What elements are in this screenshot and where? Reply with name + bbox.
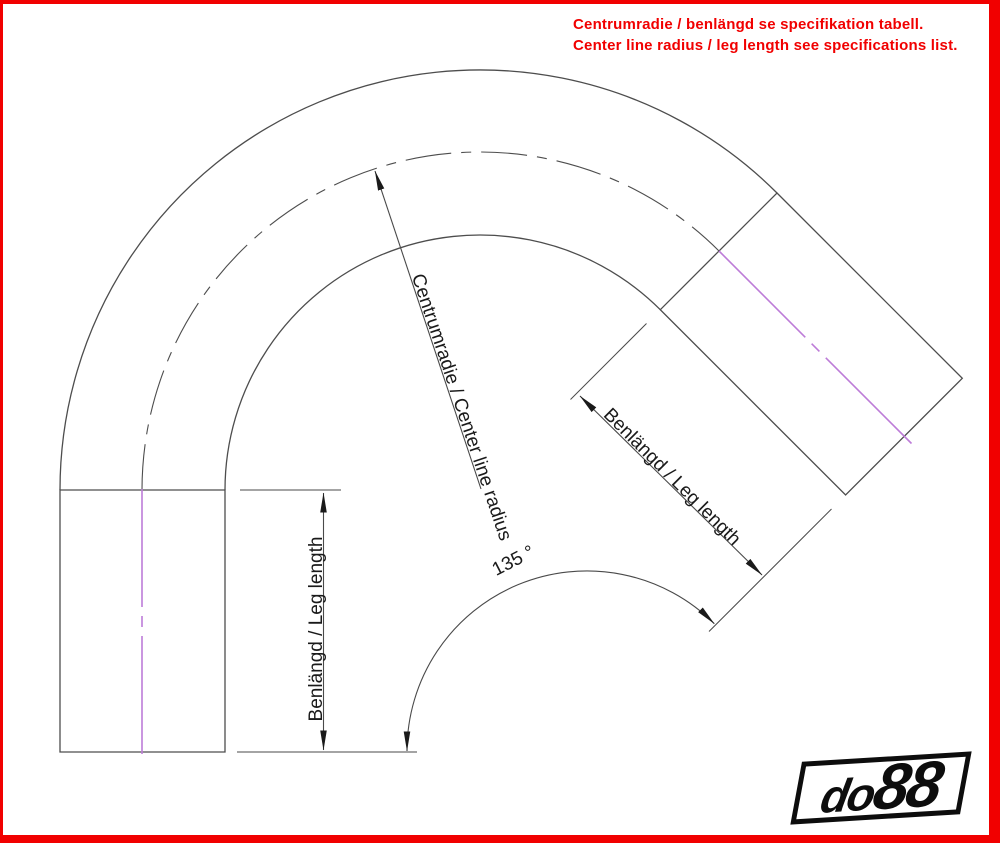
technical-drawing: Centrumradie / Center line radius Benlän… [0,0,1000,843]
specification-note-line2: Center line radius / leg length see spec… [573,35,958,56]
right-leg-dimension-label: Benlängd / Leg length [599,404,745,550]
drawing-page: Centrumradie / Center line radius Benlän… [0,0,1000,843]
do88-logo: do88 [790,751,971,824]
angle-dimension-arc [407,571,714,751]
frame-border-left [0,0,3,843]
do88-logo-text-88: 88 [870,759,944,814]
specification-note-line1: Centrumradie / benlängd se specifikation… [573,14,958,35]
radius-dimension-label: Centrumradie / Center line radius [407,271,516,543]
specification-note: Centrumradie / benlängd se specifikation… [573,14,958,56]
frame-border-bottom [0,835,1000,843]
angle-dimension-label: 135 ° [489,542,538,581]
left-leg-dimension-label: Benlängd / Leg length [306,537,327,722]
frame-border-right [989,0,1000,843]
right-leg-centerline [719,251,912,444]
right-dim-extension-upper [571,324,647,400]
frame-border-top [0,0,1000,4]
do88-logo-text-do: do [818,776,877,817]
